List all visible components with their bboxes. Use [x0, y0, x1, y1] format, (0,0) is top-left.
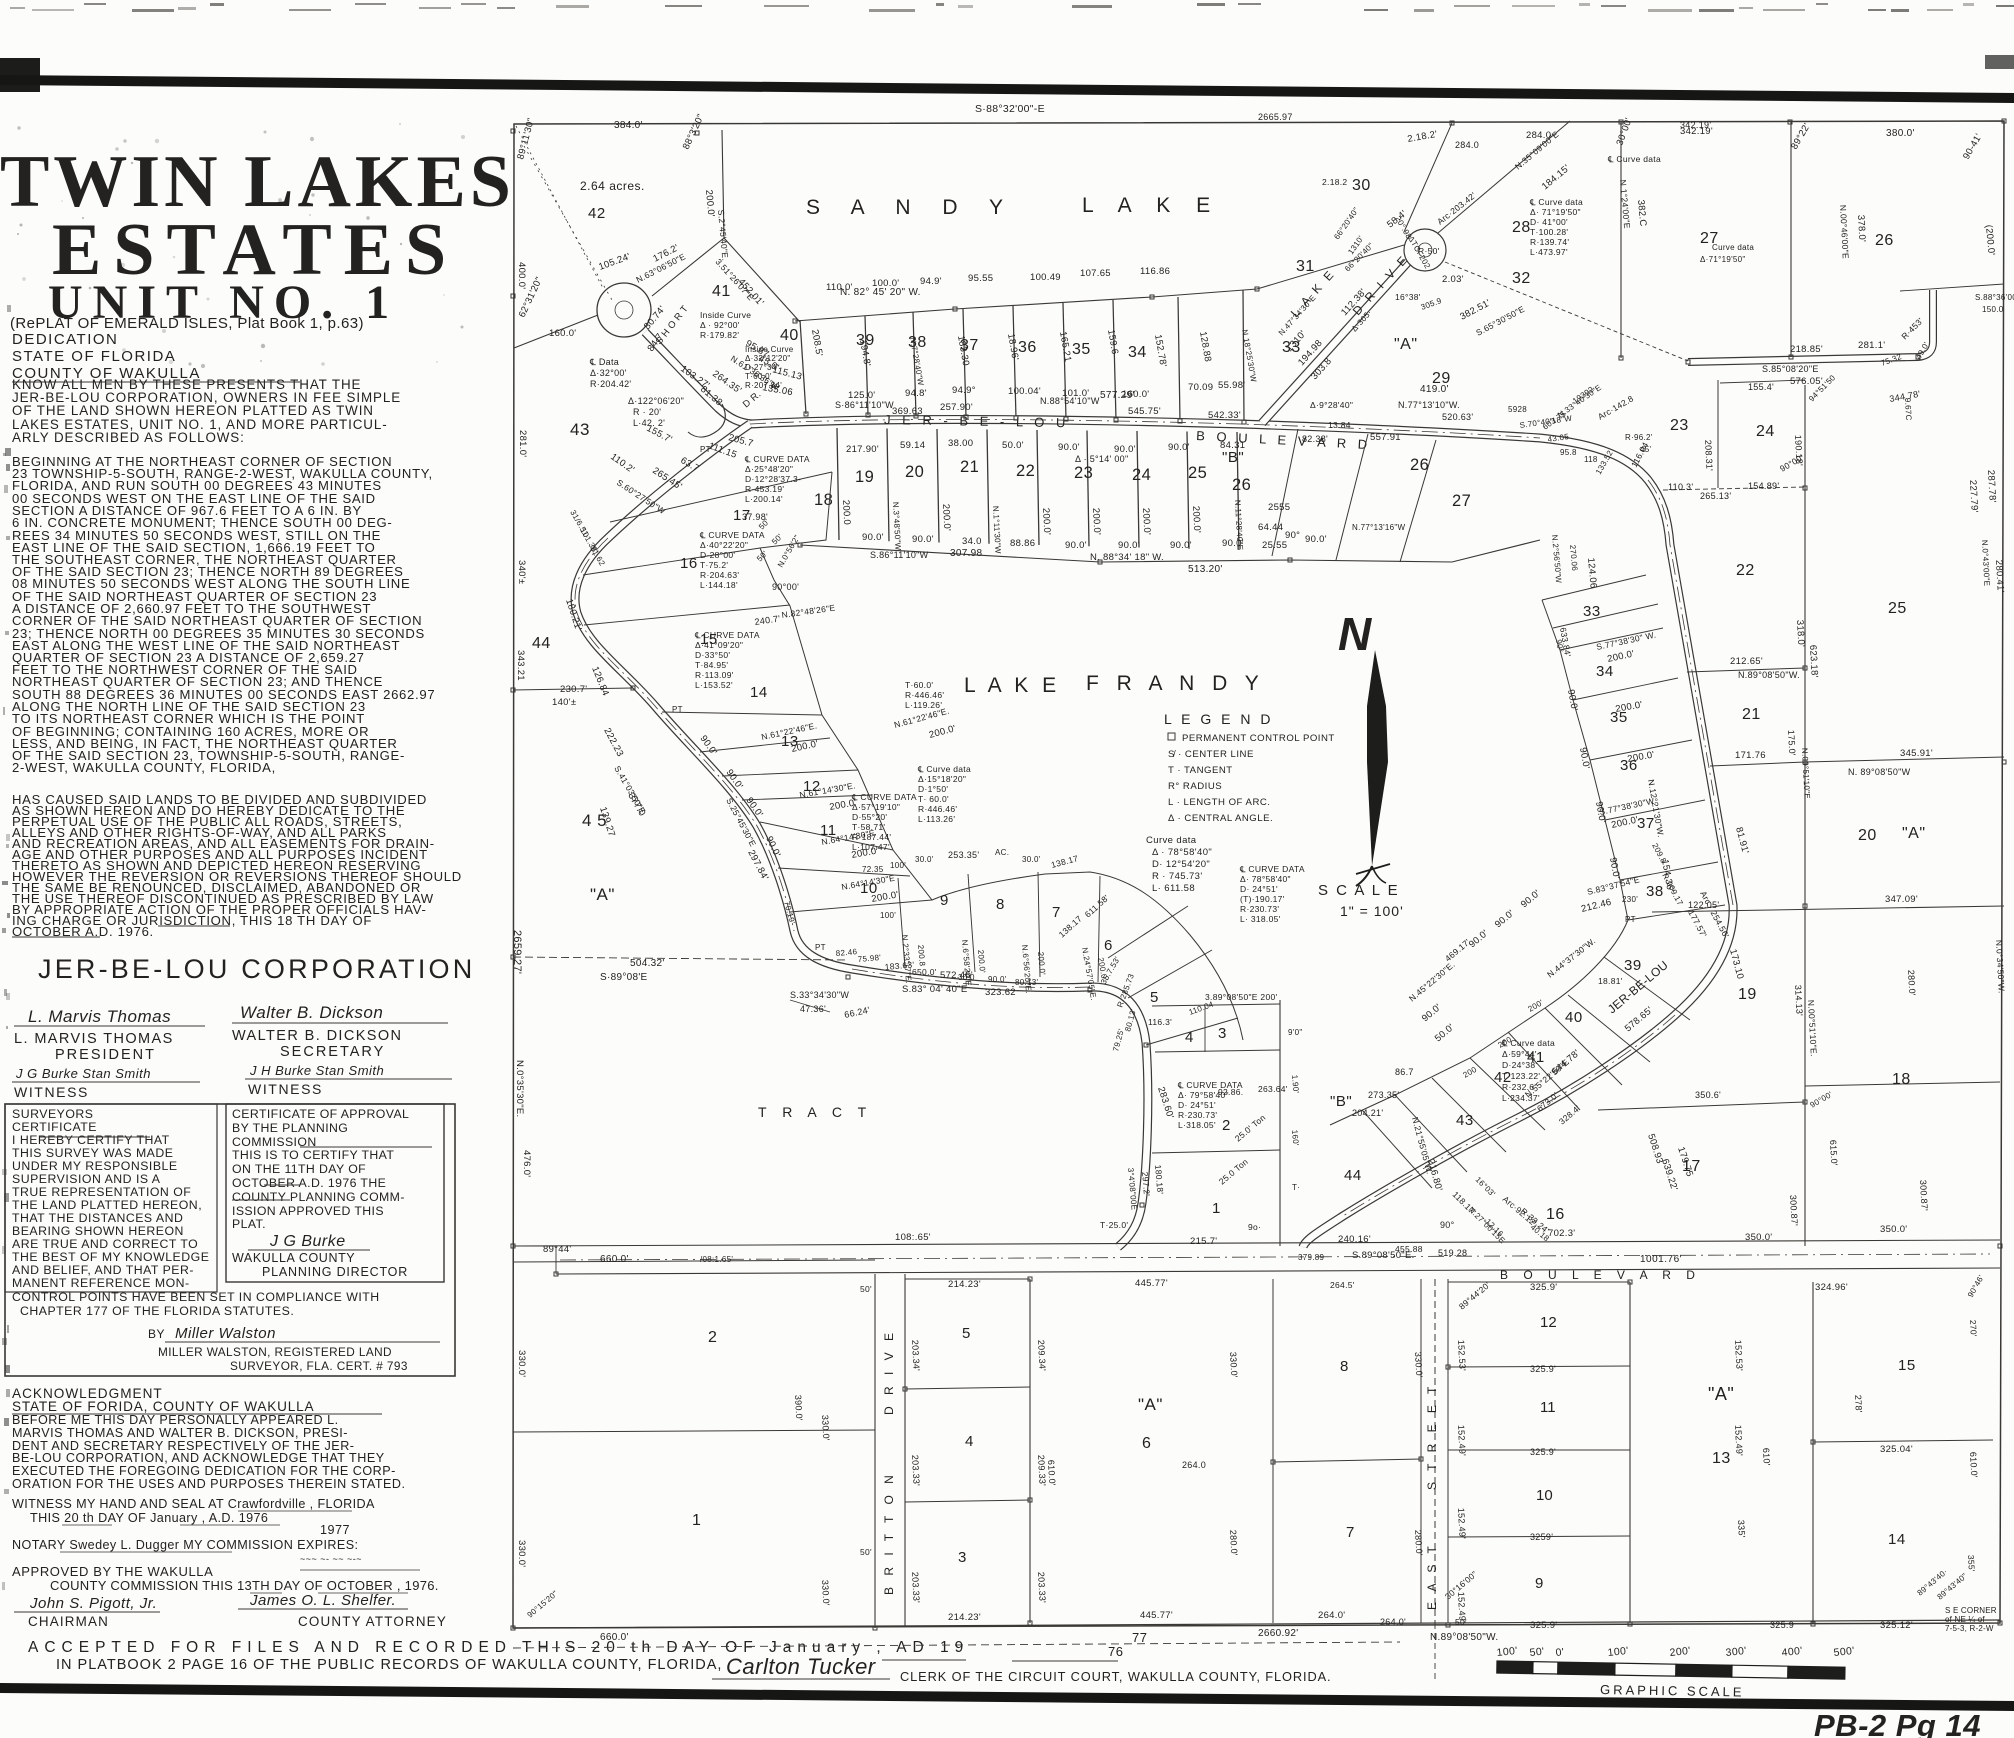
svg-text:PLAT.: PLAT. — [232, 1217, 266, 1231]
svg-text:33: 33 — [1583, 603, 1601, 620]
svg-text:90.0': 90.0' — [862, 532, 884, 543]
svg-text:208.31': 208.31' — [1703, 440, 1715, 472]
svg-text:EXECUTED THE FOREGOING DEDICAT: EXECUTED THE FOREGOING DEDICATION FOR TH… — [12, 1464, 396, 1478]
svg-text:1977: 1977 — [320, 1523, 350, 1537]
svg-text:S.85°08'20"E: S.85°08'20"E — [1762, 364, 1819, 374]
svg-text:11: 11 — [1540, 1399, 1556, 1416]
svg-text:BY: BY — [148, 1327, 165, 1341]
svg-text:155.4': 155.4' — [1748, 382, 1774, 392]
svg-text:200.0: 200.0 — [840, 500, 852, 526]
svg-text:PLANNING DIRECTOR: PLANNING DIRECTOR — [262, 1265, 408, 1279]
svg-text:I HEREBY CERTIFY THAT: I HEREBY CERTIFY THAT — [12, 1133, 170, 1147]
svg-text:513.20': 513.20' — [1188, 564, 1223, 575]
svg-text:23: 23 — [1074, 464, 1093, 482]
svg-text:95.8: 95.8 — [1560, 448, 1577, 457]
svg-text:240.7': 240.7' — [754, 613, 781, 627]
svg-text:L·113.26': L·113.26' — [918, 814, 955, 824]
svg-text:8: 8 — [1340, 1358, 1349, 1375]
svg-text:204.21': 204.21' — [1352, 1108, 1383, 1118]
svg-text:Δ · 78°58'40": Δ · 78°58'40" — [1152, 847, 1212, 858]
svg-text:S·88°32'00"-E: S·88°32'00"-E — [975, 103, 1045, 115]
svg-text:152.78': 152.78' — [1152, 334, 1169, 368]
svg-text:504.32': 504.32' — [630, 958, 665, 969]
svg-text:615.0': 615.0' — [1828, 1140, 1839, 1167]
svg-text:35: 35 — [1072, 341, 1091, 358]
svg-text:27: 27 — [1452, 492, 1471, 510]
svg-text:520.63': 520.63' — [1442, 412, 1473, 422]
svg-text:13: 13 — [1712, 1450, 1731, 1467]
svg-text:PERMANENT CONTROL POINT: PERMANENT CONTROL POINT — [1182, 733, 1335, 744]
svg-text:9: 9 — [1535, 1575, 1543, 1592]
svg-text:90.0': 90.0' — [912, 534, 934, 545]
svg-text:16°38': 16°38' — [1395, 292, 1421, 302]
svg-text:L·107.47': L·107.47' — [852, 842, 890, 852]
svg-text:380.0': 380.0' — [1886, 128, 1915, 139]
svg-text:(T)·190.17': (T)·190.17' — [1240, 894, 1285, 904]
svg-text:PT: PT — [672, 705, 683, 714]
svg-text:80.13': 80.13' — [1123, 1007, 1138, 1032]
svg-text:CLERK OF THE CIRCUIT COURT, WA: CLERK OF THE CIRCUIT COURT, WAKULLA COUN… — [900, 1669, 1332, 1684]
svg-text:R · 20': R · 20' — [633, 407, 661, 417]
svg-text:THE LAND PLATTED HEREON,: THE LAND PLATTED HEREON, — [12, 1198, 202, 1212]
svg-text:30.0': 30.0' — [1022, 855, 1041, 864]
svg-text:152.53': 152.53' — [1733, 1340, 1745, 1372]
svg-text:264.0': 264.0' — [1380, 1617, 1406, 1627]
svg-text:CERTIFICATE OF APPROVAL: CERTIFICATE OF APPROVAL — [232, 1107, 409, 1121]
svg-text:90°00': 90°00' — [772, 582, 799, 592]
svg-text:18.96': 18.96' — [1005, 333, 1021, 362]
svg-text:"A": "A" — [590, 885, 615, 904]
svg-text:702.3': 702.3' — [1548, 1228, 1575, 1239]
svg-text:305.9: 305.9 — [1420, 296, 1444, 312]
svg-text:95.55: 95.55 — [968, 273, 993, 284]
svg-text:L·144.18': L·144.18' — [700, 580, 738, 590]
svg-text:335': 335' — [1736, 1520, 1747, 1538]
svg-text:CERTIFICATE: CERTIFICATE — [12, 1120, 97, 1134]
svg-text:N.18°25'30"W: N.18°25'30"W — [1240, 329, 1258, 383]
svg-text:50': 50' — [755, 549, 769, 563]
svg-text:Δ·59°44': Δ·59°44' — [1502, 1049, 1537, 1059]
svg-text:445.77': 445.77' — [1140, 1610, 1173, 1621]
svg-text:330.0': 330.0' — [820, 1415, 831, 1442]
svg-text:T·100.28': T·100.28' — [1530, 227, 1568, 237]
svg-text:79.25': 79.25' — [1111, 1027, 1126, 1052]
svg-text:AND BELIEF, AND THAT PER-: AND BELIEF, AND THAT PER- — [12, 1263, 194, 1277]
svg-text:D·24°38': D·24°38' — [1502, 1060, 1537, 1070]
svg-text:280.0': 280.0' — [1906, 970, 1917, 997]
svg-text:T · TANGENT: T · TANGENT — [1168, 765, 1233, 776]
svg-text:307.98: 307.98 — [950, 548, 983, 559]
svg-text:177.57': 177.57' — [1686, 908, 1709, 939]
svg-text:S·86°11'10"W: S·86°11'10"W — [835, 400, 894, 410]
svg-text:6: 6 — [1104, 937, 1113, 954]
svg-text:"B": "B" — [1330, 1093, 1352, 1110]
svg-text:180.18': 180.18' — [1153, 1164, 1166, 1195]
svg-text:116.3': 116.3' — [1148, 1017, 1172, 1027]
svg-text:86.7: 86.7 — [1395, 1067, 1414, 1077]
svg-text:N.45°22'30"E.: N.45°22'30"E. — [1407, 959, 1457, 1003]
svg-text:325.9': 325.9' — [1530, 1282, 1557, 1293]
svg-text:CONTROL POINTS HAVE BEEN SET I: CONTROL POINTS HAVE BEEN SET IN COMPLIAN… — [12, 1290, 380, 1304]
svg-text:18.81': 18.81' — [1598, 976, 1623, 986]
svg-text:382.51': 382.51' — [1458, 297, 1492, 322]
svg-text:Walter B. Dickson: Walter B. Dickson — [240, 1003, 383, 1022]
svg-text:203.33': 203.33' — [1036, 1572, 1048, 1604]
svg-text:347.09': 347.09' — [1885, 894, 1918, 905]
svg-text:50': 50' — [1529, 1645, 1545, 1658]
svg-text:203.33': 203.33' — [910, 1455, 922, 1487]
svg-text:APPROVED BY THE WAKULLA: APPROVED BY THE WAKULLA — [12, 1564, 213, 1579]
svg-text:81.91': 81.91' — [1733, 826, 1751, 855]
svg-text:R·230.73': R·230.73' — [1240, 904, 1279, 914]
svg-text:2.18.2': 2.18.2' — [1407, 129, 1439, 145]
svg-text:90.0': 90.0' — [1168, 442, 1190, 453]
svg-text:355': 355' — [1966, 1555, 1977, 1573]
svg-text:200: 200 — [1462, 1065, 1479, 1080]
svg-text:WALTER B. DICKSON: WALTER B. DICKSON — [232, 1028, 402, 1044]
svg-text:R·204.63': R·204.63' — [700, 570, 739, 580]
svg-text:300': 300' — [1725, 1645, 1747, 1659]
svg-text:T·25.0': T·25.0' — [1100, 1220, 1128, 1230]
svg-text:2665.97: 2665.97 — [1258, 112, 1293, 122]
svg-text:of NE ¼ of: of NE ¼ of — [1945, 1615, 1985, 1624]
svg-text:3: 3 — [1218, 1025, 1226, 1042]
svg-text:270': 270' — [1968, 1320, 1979, 1338]
svg-text:℄ Data: ℄ Data — [589, 357, 619, 367]
svg-text:R · 745.73': R · 745.73' — [1152, 871, 1203, 882]
svg-text:325.9': 325.9' — [1530, 1447, 1556, 1457]
svg-text:S.2°45'40"E.: S.2°45'40"E. — [716, 209, 730, 261]
svg-text:208.5': 208.5' — [809, 329, 825, 358]
svg-text:200.0': 200.0' — [1090, 508, 1102, 536]
svg-text:9'0": 9'0" — [1288, 1028, 1302, 1037]
svg-text:30°00': 30°00' — [1614, 116, 1634, 147]
svg-text:88°3'20": 88°3'20" — [681, 112, 707, 151]
svg-text:Carlton Tucker: Carlton Tucker — [726, 1654, 877, 1679]
svg-text:379.89: 379.89 — [1298, 1253, 1325, 1262]
svg-text:L. MARVIS THOMAS: L. MARVIS THOMAS — [14, 1031, 174, 1047]
svg-text:D·1°50': D·1°50' — [918, 784, 948, 794]
svg-text:R·446.46': R·446.46' — [905, 690, 944, 700]
svg-text:3.89°08'50"E 200': 3.89°08'50"E 200' — [1205, 992, 1278, 1002]
svg-text:212.65': 212.65' — [1730, 656, 1763, 667]
svg-text:2: 2 — [708, 1329, 717, 1346]
svg-text:23: 23 — [1670, 417, 1689, 434]
svg-text:7: 7 — [1052, 904, 1061, 921]
svg-text:/08:1.65': /08:1.65' — [700, 1255, 733, 1264]
svg-text:330.0': 330.0' — [516, 1540, 527, 1567]
svg-text:105.24': 105.24' — [597, 251, 632, 273]
svg-text:THAT THE DISTANCES AND: THAT THE DISTANCES AND — [12, 1211, 183, 1225]
svg-text:94.8': 94.8' — [905, 388, 927, 399]
svg-text:ARLY DESCRIBED AS FOLLOWS:: ARLY DESCRIBED AS FOLLOWS: — [12, 430, 245, 445]
svg-text:WITNESS MY HAND AND SEAL AT Cr: WITNESS MY HAND AND SEAL AT Crawfordvill… — [12, 1497, 375, 1511]
svg-text:200.0': 200.0' — [928, 723, 957, 741]
svg-text:T R A C T: T R A C T — [758, 1104, 872, 1120]
svg-text:SECRETARY: SECRETARY — [280, 1044, 385, 1060]
svg-text:D·27°34': D·27°34' — [745, 363, 779, 372]
svg-text:℄ Curve data: ℄ Curve data — [1501, 1038, 1555, 1048]
svg-text:90.0': 90.0' — [1420, 1002, 1444, 1024]
svg-text:D· 24°51': D· 24°51' — [1240, 884, 1278, 894]
svg-text:MANENT REFERENCE MON-: MANENT REFERENCE MON- — [12, 1276, 190, 1290]
svg-text:(RePLAT OF EMERALD ISLES, Plat: (RePLAT OF EMERALD ISLES, Plat Book 1, p… — [10, 315, 364, 332]
svg-text:90°15'20": 90°15'20" — [526, 1589, 560, 1620]
svg-text:7: 7 — [1346, 1524, 1355, 1541]
svg-text:20: 20 — [905, 463, 924, 481]
svg-text:209.8: 209.8 — [1650, 842, 1668, 865]
svg-text:175.0': 175.0' — [1786, 730, 1797, 757]
svg-text:J G Burke: J G Burke — [269, 1233, 346, 1250]
svg-text:CHAIRMAN: CHAIRMAN — [28, 1614, 109, 1629]
svg-text:MARVIS THOMAS AND WALTER B. DI: MARVIS THOMAS AND WALTER B. DICKSON, PRE… — [12, 1426, 348, 1440]
svg-text:200': 200' — [1527, 998, 1546, 1014]
svg-text:89°44'20': 89°44'20' — [1457, 1280, 1492, 1312]
svg-text:JER-BE-LOU CORPORATION: JER-BE-LOU CORPORATION — [38, 954, 475, 984]
svg-text:N.88°54'10"W: N.88°54'10"W — [1040, 396, 1100, 406]
svg-text:350.0': 350.0' — [1745, 1232, 1772, 1243]
svg-text:610.0': 610.0' — [1046, 1460, 1057, 1487]
svg-text:25: 25 — [1188, 464, 1207, 482]
svg-text:205.7: 205.7 — [727, 432, 754, 449]
svg-text:N.89°08'50"W.: N.89°08'50"W. — [1430, 1632, 1498, 1643]
svg-text:S.77°38'30" W.: S.77°38'30" W. — [1595, 630, 1657, 652]
svg-text:40: 40 — [780, 327, 799, 344]
svg-text:N.1°24'00"E: N.1°24'00"E — [1618, 179, 1632, 229]
svg-text:Δ·9°28'40": Δ·9°28'40" — [1310, 400, 1353, 410]
svg-text:3: 3 — [958, 1549, 967, 1566]
svg-text:L·153.52': L·153.52' — [695, 680, 733, 690]
svg-text:CHAPTER 177 OF THE FLORIDA STA: CHAPTER 177 OF THE FLORIDA STATUTES. — [20, 1304, 294, 1318]
svg-text:16: 16 — [1546, 1206, 1565, 1223]
svg-text:200.0': 200.0' — [1036, 951, 1047, 975]
svg-text:200.0': 200.0' — [940, 504, 952, 532]
svg-text:382.C: 382.C — [1635, 199, 1648, 227]
svg-text:S·89°08'E: S·89°08'E — [600, 972, 648, 983]
svg-text:34: 34 — [1128, 344, 1147, 361]
svg-text:THIS 20 th DAY OF Januar: THIS 20 th DAY OF January , A.D. 1976 — [30, 1511, 268, 1525]
svg-text:10: 10 — [1536, 1487, 1553, 1504]
svg-text:314.13': 314.13' — [1793, 985, 1805, 1017]
svg-text:OCTOBER A.D. 1976 THE: OCTOBER A.D. 1976 THE — [232, 1176, 386, 1190]
svg-text:1.90': 1.90' — [1290, 1074, 1301, 1093]
svg-text:90.0': 90.0' — [1222, 538, 1244, 549]
svg-text:2.64 acres.: 2.64 acres. — [580, 179, 645, 193]
svg-text:90.0': 90.0' — [1118, 540, 1140, 551]
svg-text:270.06: 270.06 — [1568, 544, 1579, 571]
svg-text:6: 6 — [1142, 1435, 1151, 1452]
svg-text:BEFORE ME THIS DAY PERSONALLY: BEFORE ME THIS DAY PERSONALLY APPEARED L… — [12, 1413, 339, 1427]
svg-text:J G Burke Stan Smith: J G Burke Stan Smith — [15, 1066, 151, 1081]
svg-text:PT: PT — [815, 943, 826, 952]
svg-text:Δ·122°06'20": Δ·122°06'20" — [628, 396, 684, 406]
svg-text:150.0: 150.0 — [1982, 305, 2004, 314]
svg-text:WITNESS: WITNESS — [14, 1084, 89, 1100]
svg-text:55.98': 55.98' — [1218, 380, 1245, 391]
svg-text:50': 50' — [770, 532, 784, 546]
svg-text:3259': 3259' — [1530, 1532, 1553, 1542]
svg-text:S T R E E T: S T R E E T — [1425, 1383, 1439, 1490]
svg-text:S.89°08'50"E.: S.89°08'50"E. — [1352, 1250, 1415, 1261]
svg-text:222.23: 222.23 — [601, 726, 625, 758]
svg-text:34.0: 34.0 — [962, 536, 982, 547]
svg-text:S.88°36'00"E: S.88°36'00"E — [1975, 293, 2014, 302]
svg-text:59.14: 59.14 — [900, 440, 925, 451]
svg-text:ORATION FOR THE USES AND PURPO: ORATION FOR THE USES AND PURPOSES THEREI… — [12, 1477, 406, 1491]
svg-text:4: 4 — [965, 1433, 974, 1450]
svg-text:℄ CURVE DATA: ℄ CURVE DATA — [1239, 864, 1305, 874]
svg-text:323.62: 323.62 — [985, 987, 1016, 998]
svg-text:0': 0' — [1555, 1646, 1565, 1659]
svg-text:77: 77 — [1132, 1630, 1147, 1645]
svg-text:287.78': 287.78' — [1985, 470, 1998, 504]
svg-text:31: 31 — [1296, 258, 1315, 275]
svg-text:OF THE LAND SHOWN HEREON PLATT: OF THE LAND SHOWN HEREON PLATTED AS TWIN — [12, 403, 374, 418]
svg-text:2.18.2: 2.18.2 — [1322, 177, 1347, 187]
svg-text:Arc·203.42': Arc·203.42' — [1435, 190, 1478, 227]
svg-text:84.31: 84.31 — [1220, 440, 1245, 451]
svg-text:218.85': 218.85' — [1790, 344, 1823, 355]
svg-text:203.34': 203.34' — [910, 1340, 922, 1372]
svg-text:22: 22 — [1016, 462, 1035, 480]
svg-text:577.29': 577.29' — [1100, 390, 1135, 401]
svg-text:32: 32 — [1512, 270, 1531, 287]
svg-text:F R A N D Y: F R A N D Y — [1086, 672, 1265, 695]
svg-text:152.49': 152.49' — [1456, 1508, 1468, 1540]
svg-text:L·318.05': L·318.05' — [1178, 1120, 1216, 1130]
svg-text:T· 60.0': T· 60.0' — [918, 794, 949, 804]
svg-text:400.0': 400.0' — [516, 262, 527, 289]
svg-text:610': 610' — [1761, 1448, 1772, 1466]
svg-text:264.5': 264.5' — [1330, 1280, 1355, 1290]
svg-text:1: 1 — [692, 1512, 701, 1529]
svg-text:44: 44 — [532, 635, 551, 652]
svg-text:660.0': 660.0' — [600, 1632, 629, 1643]
svg-text:N: N — [1338, 608, 1372, 660]
svg-text:N.89°08'50"W.: N.89°08'50"W. — [1738, 670, 1800, 680]
svg-text:90-41': 90-41' — [1961, 132, 1984, 162]
svg-text:D· 12°54'20": D· 12°54'20" — [1152, 859, 1210, 870]
svg-text:214.23': 214.23' — [948, 1612, 981, 1623]
svg-text:610.0': 610.0' — [1968, 1452, 1979, 1479]
svg-text:230.7': 230.7' — [560, 684, 587, 695]
svg-text:88.86: 88.86 — [1010, 538, 1035, 549]
svg-text:384.0': 384.0' — [614, 120, 643, 131]
svg-text:90.0': 90.0' — [1058, 442, 1080, 453]
svg-text:215.7': 215.7' — [1190, 1236, 1217, 1247]
svg-text:350.6': 350.6' — [1695, 1090, 1721, 1100]
svg-text:100.04': 100.04' — [1008, 386, 1041, 397]
svg-text:L·473.97': L·473.97' — [1530, 247, 1568, 257]
svg-text:110.2': 110.2' — [608, 451, 636, 475]
svg-text:611.58': 611.58' — [1083, 893, 1111, 920]
svg-text:5928: 5928 — [1508, 405, 1527, 414]
svg-text:300.87': 300.87' — [1788, 1195, 1800, 1227]
svg-text:℄ CURVE DATA: ℄ CURVE DATA — [694, 630, 760, 640]
svg-text:378.0': 378.0' — [1855, 215, 1867, 243]
svg-text:110.3': 110.3' — [1668, 482, 1693, 492]
svg-text:200.0': 200.0' — [1140, 508, 1152, 536]
svg-text:AC.: AC. — [995, 848, 1009, 857]
svg-text:BY THE PLANNING: BY THE PLANNING — [232, 1121, 348, 1135]
svg-text:24: 24 — [1756, 423, 1775, 440]
svg-text:639.22': 639.22' — [1659, 1158, 1680, 1193]
svg-text:MILLER WALSTON, REGISTERED LAN: MILLER WALSTON, REGISTERED LAND — [158, 1345, 392, 1359]
svg-text:Δ·41°09'20": Δ·41°09'20" — [695, 640, 743, 650]
svg-text:47.36': 47.36' — [800, 1004, 826, 1014]
svg-text:S C A L E: S C A L E — [1318, 882, 1400, 899]
svg-text:660.0': 660.0' — [600, 1254, 629, 1265]
svg-text:90.0': 90.0' — [1593, 801, 1608, 824]
svg-text:SURVEYORS: SURVEYORS — [12, 1107, 94, 1121]
svg-text:Δ·32°12'20": Δ·32°12'20" — [745, 354, 791, 363]
svg-text:R·446.46': R·446.46' — [918, 804, 957, 814]
svg-text:N. 88°34' 18" W.: N. 88°34' 18" W. — [1090, 552, 1164, 563]
svg-text:E A S T: E A S T — [1425, 1542, 1439, 1610]
svg-text:264.0': 264.0' — [1318, 1610, 1345, 1621]
svg-text:203.33': 203.33' — [910, 1572, 922, 1604]
svg-text:N. 82° 45' 20" W.: N. 82° 45' 20" W. — [840, 287, 921, 298]
svg-text:90.0': 90.0' — [1519, 888, 1543, 910]
svg-text:100': 100' — [890, 861, 906, 870]
svg-text:D· 41°00': D· 41°00' — [1530, 217, 1568, 227]
svg-text:159.6: 159.6 — [1105, 329, 1120, 356]
svg-text:Miller Walston: Miller Walston — [175, 1325, 276, 1342]
svg-text:N.0°35'30"E.: N.0°35'30"E. — [514, 1060, 525, 1117]
svg-text:200': 200' — [1669, 1645, 1691, 1659]
svg-text:265.13': 265.13' — [1700, 491, 1731, 501]
svg-text:IN PLATBOOK 2 PAGE 16 OF T: IN PLATBOOK 2 PAGE 16 OF THE PUBLIC RECO… — [56, 1657, 722, 1673]
svg-text:Δ·57°19'10": Δ·57°19'10" — [852, 802, 900, 812]
svg-text:T·60.0': T·60.0' — [745, 372, 772, 381]
svg-text:18: 18 — [1892, 1071, 1911, 1088]
svg-text:R·139.74': R·139.74' — [1530, 237, 1569, 247]
svg-text:15: 15 — [1898, 1357, 1916, 1374]
svg-text:545.75': 545.75' — [1128, 406, 1161, 417]
svg-text:264.0: 264.0 — [1182, 1460, 1206, 1470]
svg-text:445.77': 445.77' — [1135, 1278, 1168, 1289]
svg-text:572.45': 572.45' — [940, 970, 973, 981]
svg-text:25.0' Ton: 25.0' Ton — [1233, 1112, 1268, 1143]
svg-text:557.91: 557.91 — [1370, 432, 1401, 443]
svg-text:90°00': 90°00' — [1809, 1090, 1835, 1110]
svg-text:Δ· 78°58'40": Δ· 78°58'40" — [1240, 874, 1291, 884]
svg-text:℄ CURVE DATA: ℄ CURVE DATA — [699, 530, 765, 540]
svg-text:281.1': 281.1' — [1858, 340, 1885, 351]
svg-text:38: 38 — [1646, 883, 1664, 900]
svg-text:92.86.: 92.86. — [1218, 1087, 1243, 1097]
svg-text:200.0': 200.0' — [976, 949, 987, 973]
svg-text:STATE OF FLORIDA: STATE OF FLORIDA — [12, 348, 176, 365]
svg-text:100.49: 100.49 — [1030, 272, 1061, 283]
svg-text:200.0': 200.0' — [703, 189, 716, 217]
svg-text:94.9°: 94.9° — [952, 385, 976, 396]
svg-text:75.98': 75.98' — [857, 953, 881, 964]
svg-text:N.0°34'50"W.: N.0°34'50"W. — [1994, 940, 2007, 994]
svg-text:PB-2 Pg 14: PB-2 Pg 14 — [1814, 1708, 1981, 1738]
svg-text:650.0': 650.0' — [912, 967, 937, 977]
svg-text:R·187.44': R·187.44' — [852, 832, 891, 842]
svg-text:90.0': 90.0' — [1170, 540, 1192, 551]
svg-text:T·123.22': T·123.22' — [1502, 1071, 1540, 1081]
svg-text:390.0': 390.0' — [793, 1395, 804, 1422]
svg-text:N.24°57'05"E.: N.24°57'05"E. — [1080, 947, 1098, 1001]
svg-text:14: 14 — [750, 684, 768, 701]
svg-text:200.8: 200.8 — [916, 944, 927, 966]
svg-text:N.0°43'00"E: N.0°43'00"E — [1980, 540, 1991, 587]
svg-text:26: 26 — [1232, 476, 1251, 494]
svg-text:N.3°48'50"W: N.3°48'50"W — [891, 502, 903, 551]
